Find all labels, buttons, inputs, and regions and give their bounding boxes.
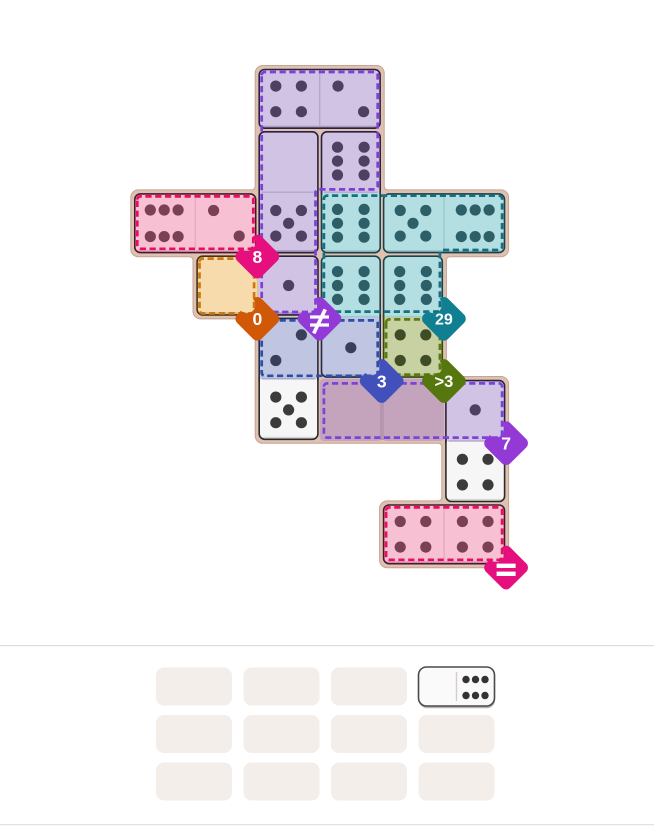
svg-text:7: 7 bbox=[501, 434, 511, 454]
svg-text:3: 3 bbox=[377, 371, 387, 391]
svg-text:>3: >3 bbox=[434, 373, 453, 391]
svg-text:8: 8 bbox=[252, 247, 262, 267]
svg-text:29: 29 bbox=[435, 312, 453, 329]
svg-text:0: 0 bbox=[252, 309, 262, 329]
